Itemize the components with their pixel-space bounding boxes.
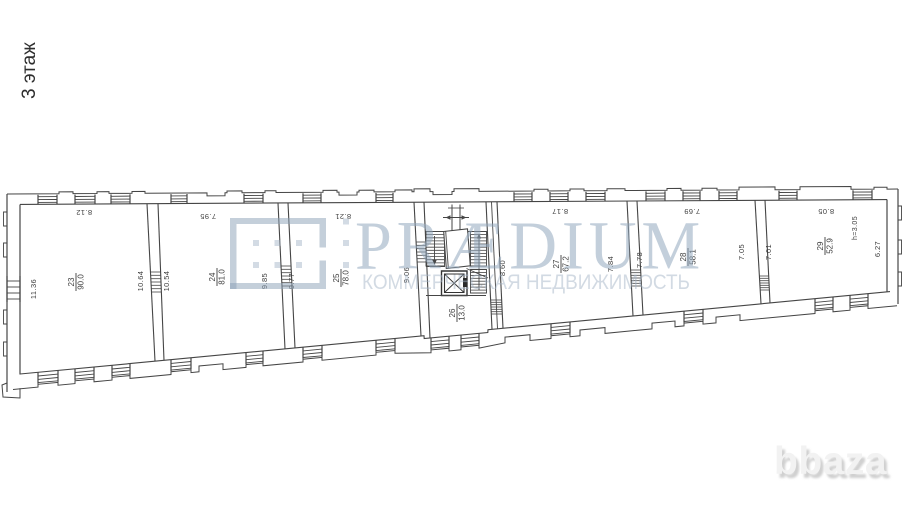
svg-text:52.9: 52.9 (826, 238, 835, 254)
svg-text:11.36: 11.36 (29, 279, 38, 299)
svg-text:6.27: 6.27 (873, 241, 882, 257)
svg-text:h=3.05: h=3.05 (852, 216, 859, 240)
svg-text:7.01: 7.01 (764, 244, 773, 260)
svg-text:13.0: 13.0 (458, 305, 467, 321)
svg-text:81.0: 81.0 (218, 269, 227, 285)
svg-text:24: 24 (208, 272, 217, 281)
svg-text:8.12: 8.12 (76, 208, 92, 217)
svg-text:7.05: 7.05 (737, 244, 746, 260)
svg-text:8.05: 8.05 (818, 207, 834, 216)
svg-text:78.0: 78.0 (342, 270, 351, 286)
svg-text:23: 23 (67, 277, 76, 286)
svg-text:10.64: 10.64 (136, 271, 145, 292)
svg-text:25: 25 (332, 273, 341, 282)
svg-text:10.54: 10.54 (162, 271, 171, 292)
svg-text:29: 29 (816, 241, 825, 250)
svg-text:26: 26 (448, 308, 457, 317)
svg-text:КОММЕРЧЕСКАЯ НЕДВИЖИМОСТЬ: КОММЕРЧЕСКАЯ НЕДВИЖИМОСТЬ (362, 270, 690, 294)
svg-text:7.95: 7.95 (200, 212, 216, 221)
svg-text:90.0: 90.0 (77, 274, 86, 290)
